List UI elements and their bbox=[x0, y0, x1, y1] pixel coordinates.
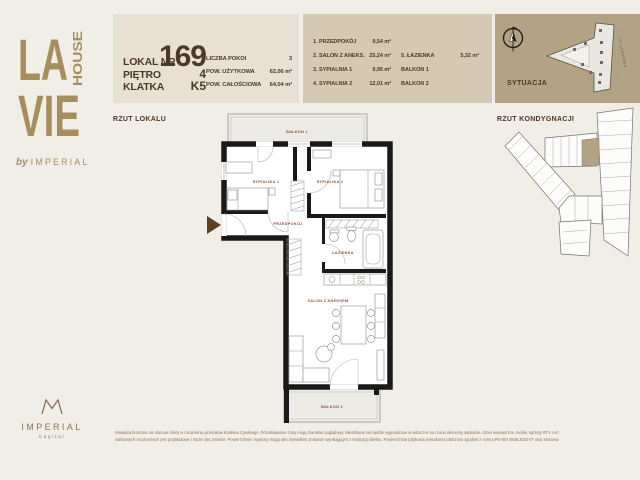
room-area: 25,24 m² bbox=[369, 53, 391, 67]
storey-plan-section-label: RZUT KONDYGNACJI bbox=[497, 116, 574, 123]
hallway-label: PRZEDPOKÓJ bbox=[273, 221, 302, 226]
logo-house-text: HOUSE bbox=[71, 31, 85, 86]
unit-info-panel: LOKAL NR 169 PIĘTRO 4 KLATKA K5 LICZBA P… bbox=[113, 14, 299, 103]
imperial-monogram-icon bbox=[41, 398, 63, 415]
room-row: BALKON 2 bbox=[401, 81, 479, 95]
room-name: 4. SYPIALNIA 2 bbox=[313, 81, 352, 95]
dining-set bbox=[332, 306, 374, 344]
room-row: 3. SYPIALNIA 19,95 m² bbox=[313, 67, 391, 81]
bedroom1-label: SYPIALNIA 1 bbox=[253, 180, 280, 184]
disclaimer-line2: sanitarnych i kuchennych jest przykładow… bbox=[115, 437, 559, 444]
stat-row: POW. CAŁOŚCIOWA64,04 m² bbox=[206, 82, 292, 95]
situation-panel: SYTUACJA UL. ŁUKOWSKA bbox=[495, 14, 640, 103]
site-plan-drawing: UL. ŁUKOWSKA bbox=[539, 17, 639, 99]
room-row: 2. SALON Z ANEKS.25,24 m² bbox=[313, 53, 391, 67]
room-row: 4. SYPIALNIA 212,01 m² bbox=[313, 81, 391, 95]
stat-row: POW. UŻYTKOWA62,06 m² bbox=[206, 69, 292, 82]
footer-imperial-text: IMPERIAL bbox=[20, 422, 84, 432]
apartment-floor-plan: BALKON 1 BALKON 2 bbox=[200, 106, 410, 446]
stat-label: POW. CAŁOŚCIOWA bbox=[206, 82, 261, 95]
bedroom2-label: SYPIALNIA 2 bbox=[317, 180, 344, 184]
highlighted-unit bbox=[582, 138, 599, 166]
room-list-panel: 1. PRZEDPOKÓJ9,54 m² 2. SALON Z ANEKS.25… bbox=[303, 14, 492, 103]
salon-label: SALON Z ANEKSEM bbox=[307, 299, 348, 303]
klatka-value: K5 bbox=[157, 79, 206, 93]
room-name: 5. ŁAZIENKA bbox=[401, 53, 434, 67]
room-area: 9,54 m² bbox=[372, 39, 391, 53]
room-name: 2. SALON Z ANEKS. bbox=[313, 53, 365, 67]
room-area: 9,95 m² bbox=[372, 67, 391, 81]
compass-icon bbox=[500, 25, 526, 53]
balcony-1-label: BALKON 1 bbox=[286, 130, 308, 134]
logo-vie-text: VIE bbox=[18, 84, 80, 149]
byline-imperial: IMPERIAL bbox=[31, 157, 90, 167]
stat-value: 62,06 m² bbox=[270, 69, 292, 82]
pietro-label: PIĘTRO bbox=[123, 69, 161, 81]
stat-label: POW. UŻYTKOWA bbox=[206, 69, 255, 82]
room-list-col1: 1. PRZEDPOKÓJ9,54 m² 2. SALON Z ANEKS.25… bbox=[313, 39, 391, 95]
stat-row: LICZBA POKOI3 bbox=[206, 56, 292, 69]
stat-value: 3 bbox=[289, 56, 292, 69]
storey-plan-drawing bbox=[497, 104, 639, 294]
room-name: BALKON 1 bbox=[401, 67, 429, 81]
room-name: 3. SYPIALNIA 1 bbox=[313, 67, 352, 81]
unit-stats: LICZBA POKOI3 POW. UŻYTKOWA62,06 m² POW.… bbox=[206, 56, 292, 95]
stat-label: LICZBA POKOI bbox=[206, 56, 246, 69]
legal-disclaimer: Niniejsza broszura nie stanowi oferty w … bbox=[115, 430, 559, 443]
byline: by IMPERIAL bbox=[16, 157, 96, 168]
stat-value: 64,04 m² bbox=[270, 82, 292, 95]
disclaimer-line1: Niniejsza broszura nie stanowi oferty w … bbox=[115, 430, 559, 437]
room-list-col2: 5. ŁAZIENKA5,32 m² BALKON 1 BALKON 2 bbox=[401, 53, 479, 95]
room-name: BALKON 2 bbox=[401, 81, 429, 95]
balcony-2-label: BALKON 2 bbox=[321, 405, 343, 409]
byline-by: by bbox=[16, 157, 28, 168]
room-area: 12,01 m² bbox=[369, 81, 391, 95]
room-row: 5. ŁAZIENKA5,32 m² bbox=[401, 53, 479, 67]
bathroom-label: ŁAZIENKA bbox=[332, 251, 354, 255]
room-row: BALKON 1 bbox=[401, 67, 479, 81]
balcony-2: BALKON 2 bbox=[284, 389, 380, 422]
footer-capital-text: Capital bbox=[20, 434, 84, 439]
floor-plan-section-label: RZUT LOKALU bbox=[113, 116, 166, 123]
room-area: 5,32 m² bbox=[460, 53, 479, 67]
room-name: 1. PRZEDPOKÓJ bbox=[313, 39, 356, 53]
kitchen-counter bbox=[324, 274, 386, 285]
entrance-arrow-icon bbox=[207, 216, 221, 234]
room-row: 1. PRZEDPOKÓJ9,54 m² bbox=[313, 39, 391, 53]
imperial-capital-logo: IMPERIAL Capital bbox=[20, 398, 84, 439]
lavie-house-logo: LA VIE HOUSE bbox=[16, 28, 102, 150]
